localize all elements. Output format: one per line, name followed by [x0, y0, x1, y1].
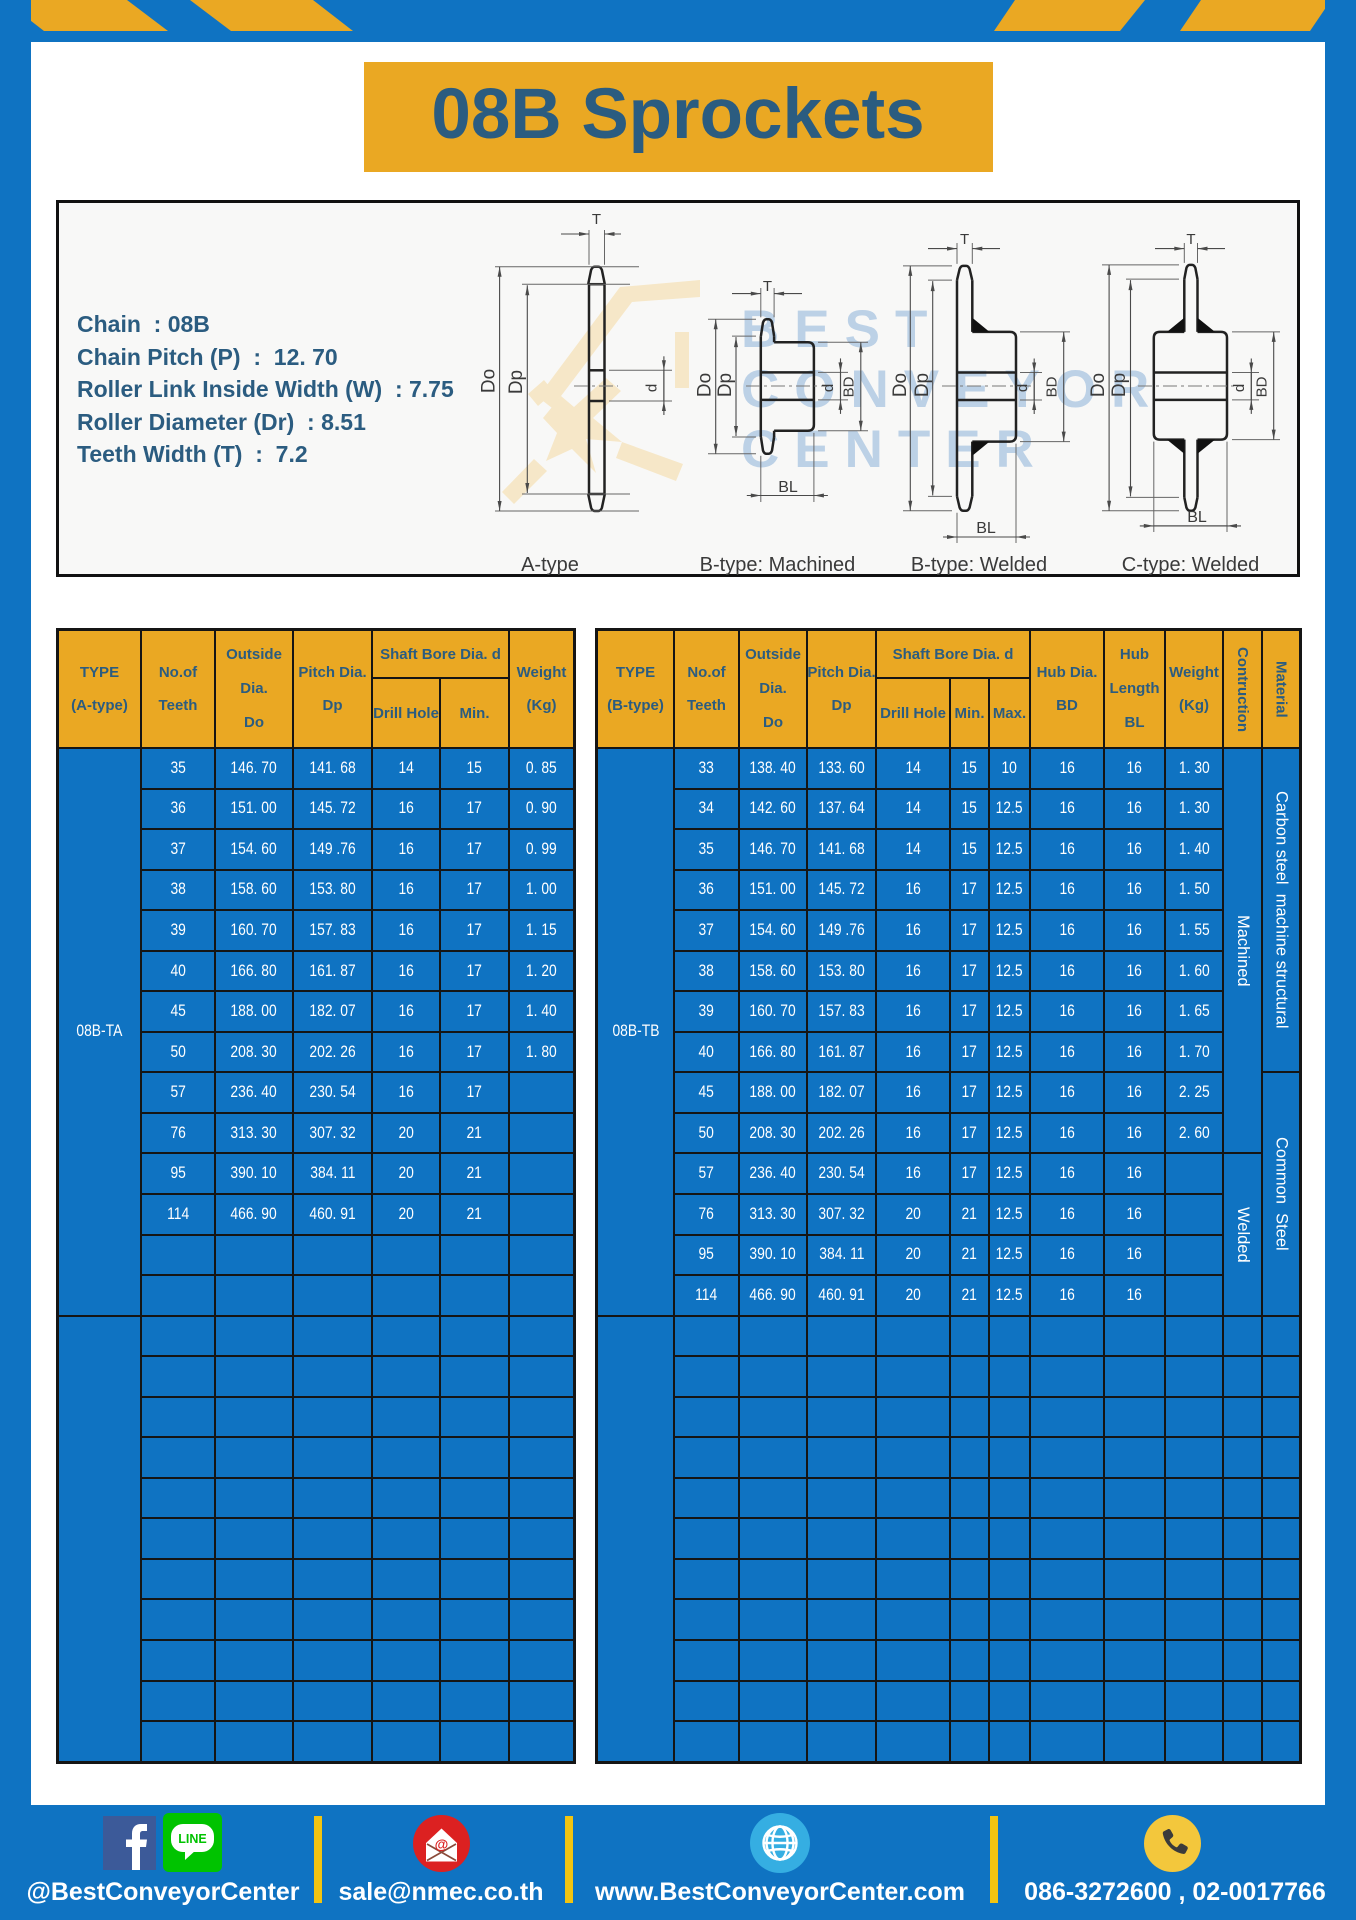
svg-text:Dp: Dp	[912, 373, 933, 397]
svg-text:C-type: Welded: C-type: Welded	[1122, 554, 1259, 576]
svg-text:@: @	[435, 1836, 449, 1852]
svg-text:B-type: Welded: B-type: Welded	[911, 554, 1047, 576]
svg-text:d: d	[644, 384, 661, 392]
svg-text:B-type: Machined: B-type: Machined	[700, 554, 856, 576]
svg-text:T: T	[763, 278, 772, 295]
svg-text:BD: BD	[841, 376, 858, 397]
svg-text:d: d	[820, 384, 837, 392]
svg-text:BL: BL	[976, 520, 996, 537]
svg-text:BL: BL	[778, 479, 798, 496]
svg-text:T: T	[592, 211, 601, 228]
svg-text:Do: Do	[890, 373, 911, 397]
svg-text:BL: BL	[1187, 509, 1207, 526]
svg-text:Dp: Dp	[506, 370, 527, 394]
svg-text:T: T	[1186, 231, 1195, 248]
svg-text:LINE: LINE	[178, 1832, 206, 1846]
svg-text:d: d	[1231, 384, 1248, 392]
svg-text:Dp: Dp	[1109, 373, 1130, 397]
svg-text:Do: Do	[695, 373, 716, 397]
svg-text:Do: Do	[1088, 373, 1109, 397]
svg-text:BD: BD	[1044, 376, 1061, 397]
svg-text:Do: Do	[478, 369, 499, 393]
svg-text:T: T	[960, 231, 969, 248]
svg-text:d: d	[1014, 384, 1031, 392]
svg-text:A-type: A-type	[521, 554, 579, 576]
svg-text:BD: BD	[1254, 376, 1271, 397]
svg-text:Dp: Dp	[715, 373, 736, 397]
